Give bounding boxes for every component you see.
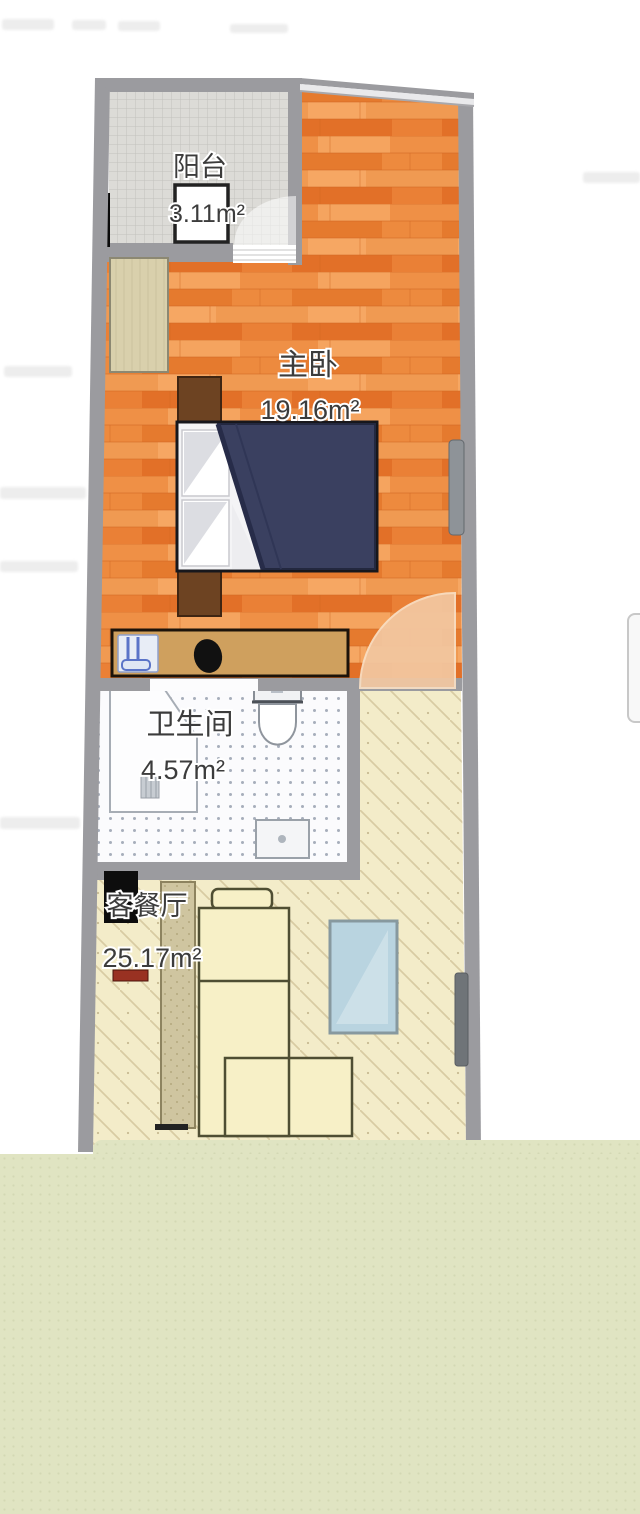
bathroom-area: 4.57m² (141, 755, 225, 785)
nightstand-top (178, 377, 221, 422)
master-bedroom-area: 19.16m² (260, 395, 359, 425)
bathroom-label: 卫生间 (146, 708, 233, 741)
living-dining-label: 客餐厅 (107, 891, 188, 921)
bathroom-door-opening (150, 679, 258, 691)
floor-plan-canvas[interactable]: 阳台 3.11m² 主卧 19.16m² 卫生间 4.57m² 客餐厅 25.1… (0, 0, 640, 1160)
side-drawer-handle[interactable] (627, 613, 640, 723)
balcony-top-wall (95, 78, 302, 92)
master-bedroom-label: 主卧 (278, 349, 338, 382)
double-bed (177, 422, 377, 571)
desk (112, 630, 348, 676)
living-dining-area: 25.17m² (102, 943, 201, 973)
desk-lamp-icon (118, 635, 158, 672)
floor-plan-page: 阳台 3.11m² 主卧 19.16m² 卫生间 4.57m² 客餐厅 25.1… (0, 0, 640, 1514)
bottom-sheet (0, 1154, 640, 1514)
bathroom-sink (256, 820, 309, 858)
bedroom-window (449, 440, 464, 535)
balcony-label: 阳台 (173, 152, 227, 182)
wardrobe (110, 258, 168, 372)
rug-edge-mark (155, 1124, 188, 1130)
bathroom-right-wall (347, 690, 360, 880)
balcony-area: 3.11m² (169, 200, 245, 228)
living-room-window (455, 973, 468, 1066)
nightstand-bottom (178, 571, 221, 616)
